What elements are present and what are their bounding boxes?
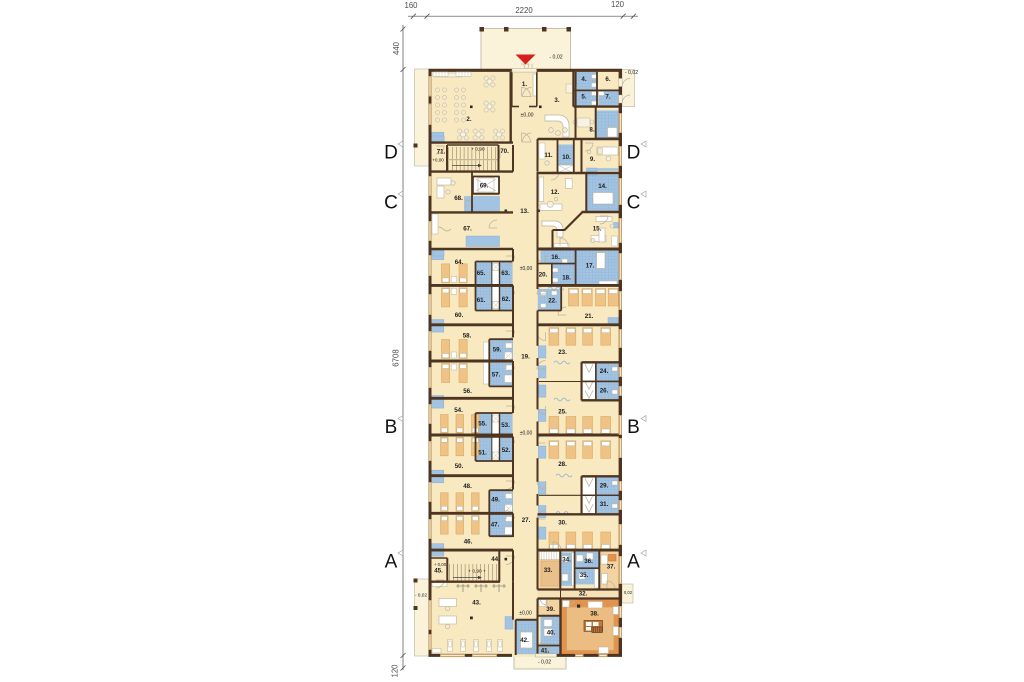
svg-text:28.: 28. <box>558 461 567 468</box>
svg-text:41.: 41. <box>541 648 550 655</box>
svg-text:±0,00: ±0,00 <box>519 611 532 617</box>
svg-text:40.: 40. <box>547 630 556 637</box>
svg-text:1.: 1. <box>522 81 527 88</box>
svg-text:120: 120 <box>391 664 400 678</box>
svg-text:- 0,02: - 0,02 <box>625 70 638 76</box>
svg-text:8.: 8. <box>589 127 594 134</box>
svg-text:45.: 45. <box>434 568 443 575</box>
svg-text:36.: 36. <box>584 558 593 565</box>
svg-text:65.: 65. <box>477 270 486 277</box>
svg-text:120: 120 <box>611 0 625 9</box>
svg-text:12.: 12. <box>551 189 560 196</box>
svg-text:A: A <box>627 552 640 573</box>
svg-text:43.: 43. <box>472 600 481 607</box>
svg-text:14.: 14. <box>598 183 607 190</box>
svg-text:39.: 39. <box>546 606 555 613</box>
svg-text:C: C <box>627 193 641 214</box>
svg-text:30.: 30. <box>558 520 567 527</box>
svg-text:70.: 70. <box>500 148 509 155</box>
svg-text:68.: 68. <box>454 195 463 202</box>
svg-text:- 0,02: - 0,02 <box>538 660 551 666</box>
svg-text:69.: 69. <box>480 183 489 190</box>
svg-text:11.: 11. <box>544 152 553 159</box>
svg-text:48.: 48. <box>463 483 472 490</box>
svg-text:D: D <box>384 143 398 164</box>
svg-text:18.: 18. <box>562 275 571 282</box>
svg-text:440: 440 <box>392 41 401 55</box>
svg-text:±0,00: ±0,00 <box>521 113 534 119</box>
svg-text:2.: 2. <box>466 116 471 123</box>
svg-text:13.: 13. <box>520 208 529 215</box>
svg-text:33.: 33. <box>544 567 553 574</box>
svg-text:35.: 35. <box>580 572 589 579</box>
svg-text:22.: 22. <box>548 298 557 305</box>
svg-text:4.: 4. <box>581 76 586 83</box>
svg-text:31.: 31. <box>600 501 609 508</box>
svg-text:+ 0,00: + 0,00 <box>434 562 447 567</box>
svg-text:+ 0,90 +: + 0,90 + <box>468 569 486 575</box>
svg-text:C: C <box>384 193 398 214</box>
svg-text:27.: 27. <box>522 517 531 524</box>
svg-text:+ 0,90: + 0,90 <box>471 147 485 153</box>
svg-text:67.: 67. <box>463 226 472 233</box>
svg-text:6708: 6708 <box>392 349 401 366</box>
svg-text:3.: 3. <box>554 97 559 104</box>
svg-text:38.: 38. <box>590 611 599 618</box>
svg-text:34.: 34. <box>562 557 571 564</box>
svg-text:52.: 52. <box>502 447 511 454</box>
svg-text:26.: 26. <box>600 388 609 395</box>
svg-text:A: A <box>385 552 398 573</box>
svg-text:23.: 23. <box>558 349 567 356</box>
svg-text:- 0,02: - 0,02 <box>415 593 428 599</box>
svg-text:25.: 25. <box>558 409 567 416</box>
svg-text:32.: 32. <box>579 591 588 598</box>
svg-text:17.: 17. <box>586 263 595 270</box>
svg-text:29.: 29. <box>600 483 609 490</box>
svg-text:24.: 24. <box>600 368 609 375</box>
svg-text:- 0,02: - 0,02 <box>549 55 562 61</box>
svg-text:21.: 21. <box>585 313 594 320</box>
svg-text:±0,00: ±0,00 <box>520 431 533 437</box>
svg-text:15.: 15. <box>593 226 602 233</box>
svg-text:58.: 58. <box>463 333 472 340</box>
svg-text:B: B <box>627 417 640 438</box>
svg-text:9.: 9. <box>590 156 595 163</box>
svg-text:71.: 71. <box>437 149 446 156</box>
svg-text:50.: 50. <box>455 463 464 470</box>
svg-text:53.: 53. <box>501 422 510 429</box>
svg-text:44.: 44. <box>491 556 500 563</box>
svg-text:51.: 51. <box>478 450 487 457</box>
svg-text:42.: 42. <box>520 637 529 644</box>
svg-text:6.: 6. <box>605 76 610 83</box>
svg-text:56.: 56. <box>463 388 472 395</box>
svg-text:47.: 47. <box>491 522 500 529</box>
svg-text:37.: 37. <box>607 564 616 571</box>
svg-text:±0,00: ±0,00 <box>520 266 533 272</box>
svg-text:16.: 16. <box>551 254 560 261</box>
svg-text:19.: 19. <box>521 354 530 361</box>
svg-text:59.: 59. <box>493 347 502 354</box>
svg-text:160: 160 <box>404 1 418 10</box>
svg-text:46.: 46. <box>464 539 473 546</box>
svg-text:D: D <box>627 143 641 164</box>
svg-text:7.: 7. <box>605 94 610 101</box>
svg-text:61.: 61. <box>477 297 486 304</box>
svg-text:10.: 10. <box>562 154 571 161</box>
svg-text:54.: 54. <box>454 407 463 414</box>
svg-text:49.: 49. <box>491 497 500 504</box>
svg-text:2220: 2220 <box>515 6 533 15</box>
svg-text:57.: 57. <box>492 372 501 379</box>
svg-text:0,02: 0,02 <box>624 590 633 595</box>
svg-text:55.: 55. <box>478 421 487 428</box>
svg-text:63.: 63. <box>501 270 510 277</box>
svg-text:+0,00: +0,00 <box>432 158 444 163</box>
svg-text:B: B <box>385 417 398 438</box>
svg-text:60.: 60. <box>455 312 464 319</box>
svg-text:64.: 64. <box>455 259 464 266</box>
svg-text:20.: 20. <box>539 272 548 279</box>
svg-text:62.: 62. <box>502 296 511 303</box>
svg-text:5.: 5. <box>581 94 586 101</box>
